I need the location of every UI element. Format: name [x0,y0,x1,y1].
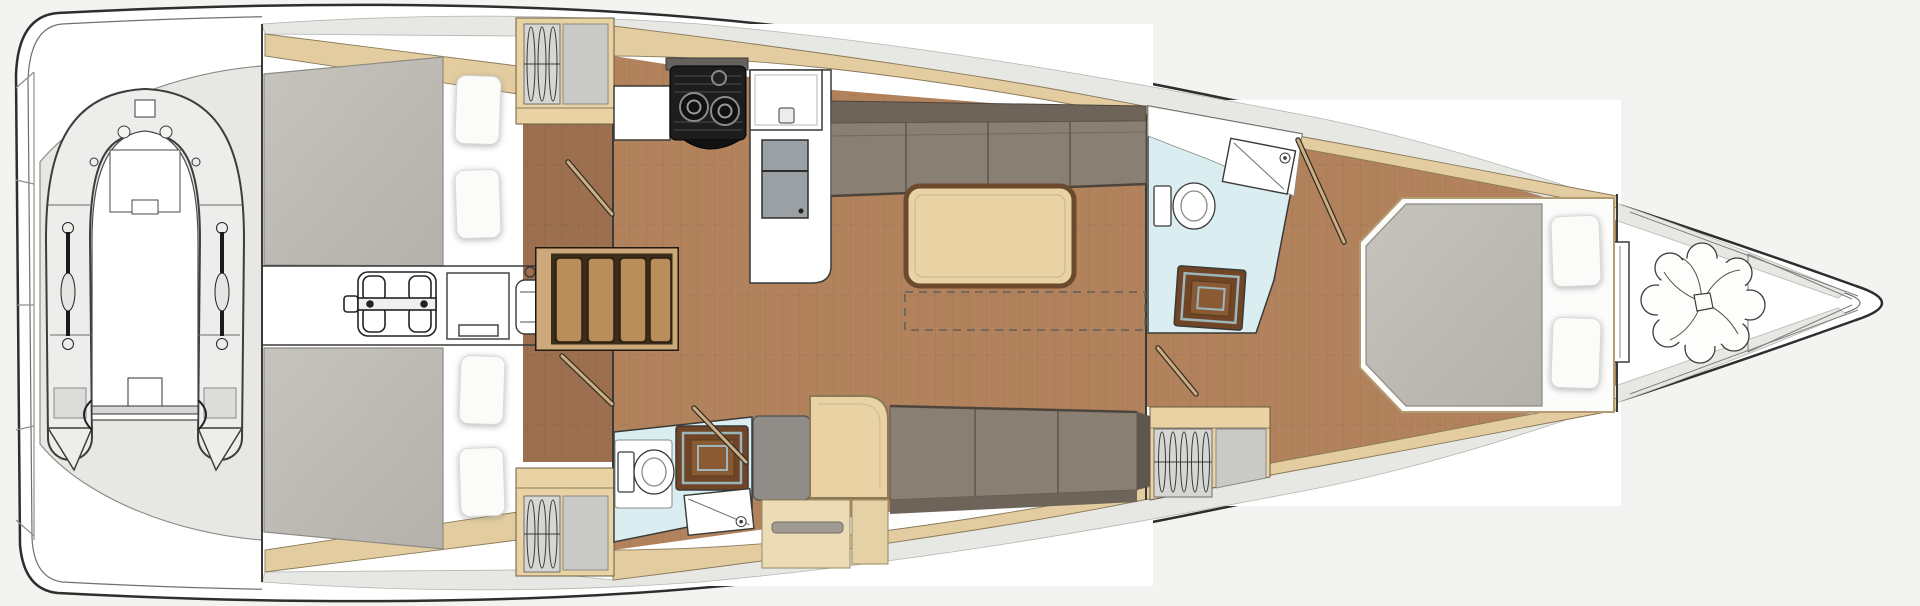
wardrobe-aft-top [516,18,614,124]
salon-sofa-upper [831,101,1146,196]
pillow [455,169,501,238]
salon-cabinet [762,500,850,568]
wardrobe-aft-bottom [516,468,614,576]
settee-cushions [890,406,1137,500]
pillow [459,447,505,516]
dinghy-patch-left [54,388,86,418]
stove-knob [712,71,726,85]
coil-center [1694,293,1713,311]
refrigerator [762,140,808,218]
cabinet-handle [772,522,843,533]
pillow [1551,317,1601,389]
chart-seat [753,416,810,500]
floor-plan-canvas [0,0,1920,606]
anchor-rode-coil [1641,243,1765,363]
companionway-stairs [536,248,678,350]
salon-cabinet-2 [852,500,888,564]
counter-left [614,86,670,140]
pillow [459,355,505,424]
shower-grate [676,426,748,490]
settee-end-panel [1137,412,1150,490]
dinghy-handle-left [118,126,130,138]
tender-garage [40,66,262,540]
stair-landing [541,253,551,345]
dinghy-bow-plate [135,100,155,117]
dinghy-handle-right [160,126,172,138]
island-berth-mattress [1366,204,1542,406]
aft-head [614,417,754,542]
berth-mattress-top [264,57,443,266]
burner [711,97,739,125]
burner [680,93,708,121]
equipment-box [447,273,509,339]
pillow [1551,215,1601,287]
stove [670,66,746,149]
pillow [455,75,501,144]
engine [344,272,436,336]
berth-mattress-bottom [264,348,443,549]
forward-cabin [1360,198,1614,412]
dinghy-patch-right [204,388,236,418]
dinghy [48,100,242,470]
settee-lower [890,406,1150,514]
stair-treads [556,258,671,342]
sink-unit [750,70,822,130]
toilet [1154,183,1215,229]
toilet [618,450,674,494]
head-sink [684,489,754,536]
sink-drain [779,108,794,123]
yacht-floor-plan: Sailing yacht interior layout — top view… [0,0,1920,606]
shower-grate [1174,266,1246,331]
dinghy-seat-notch [132,200,158,214]
dining-table [906,186,1074,286]
